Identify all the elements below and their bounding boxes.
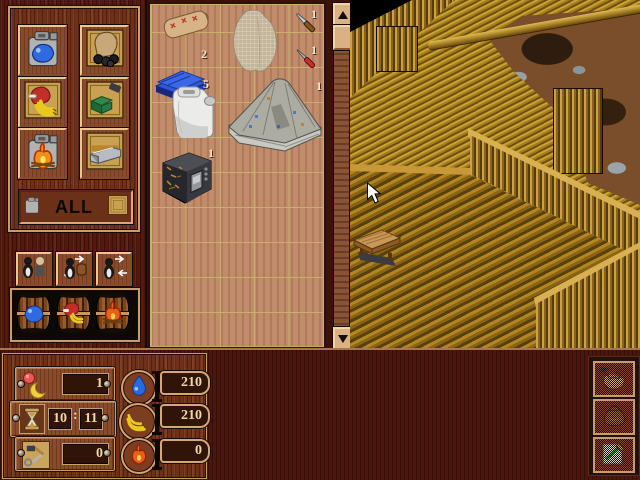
scrollbar-track[interactable] <box>333 2 350 350</box>
write-button[interactable] <box>593 437 635 473</box>
rivet <box>104 381 110 387</box>
time-separator: : <box>73 408 78 424</box>
category-metal-button[interactable] <box>80 128 129 179</box>
iso-table[interactable] <box>352 222 404 270</box>
item-water-can[interactable] <box>161 75 225 143</box>
repair-value: 0 <box>62 443 109 465</box>
hourglass-icon <box>19 404 45 434</box>
crew-pair-icon <box>20 254 48 285</box>
time-minutes: 11 <box>79 408 103 430</box>
water-value: 210 <box>160 371 210 395</box>
barrel-cap <box>19 293 48 298</box>
barrel-cap <box>19 328 48 333</box>
fuel-gauge-divider <box>155 441 159 468</box>
food-resource-icon-frame <box>119 403 157 441</box>
supplies-button[interactable] <box>593 361 635 397</box>
item-tent[interactable] <box>225 73 325 153</box>
food-gauge-divider <box>155 406 159 433</box>
scroll-down-icon <box>338 335 348 343</box>
pouch-icon <box>600 402 628 433</box>
item-count: 2 <box>201 47 207 62</box>
sun-moon-icon <box>20 370 48 403</box>
world-view[interactable] <box>350 0 640 350</box>
crossed-tools-icon <box>22 441 50 469</box>
day-plate: 1 <box>15 367 115 401</box>
barrel-panel <box>10 288 140 342</box>
fuel-value: 0 <box>160 439 210 463</box>
item-count: 1 <box>208 146 214 161</box>
fire-jug-icon <box>25 131 61 176</box>
category-fire-button[interactable] <box>18 128 67 179</box>
crew-barrel-swap-icon <box>60 254 88 285</box>
pencil-check-icon <box>600 439 628 472</box>
filter-all-button[interactable]: ALL <box>19 190 133 224</box>
item-count: 5 <box>203 77 209 92</box>
time-plate: 10 : 11 <box>10 401 116 437</box>
swap-crew-left-button[interactable] <box>16 252 52 286</box>
inventory-panel: 1 2 1 <box>145 0 330 350</box>
materials-crate-icon <box>86 81 124 124</box>
water-drop-icon <box>128 374 150 403</box>
food-value: 210 <box>160 404 210 428</box>
all-label: ALL <box>55 197 93 218</box>
rivet <box>13 415 19 421</box>
inventory-scrollbar <box>330 0 350 350</box>
item-count: 1 <box>316 79 322 94</box>
water-barrel[interactable] <box>17 294 50 332</box>
food-crate-icon <box>24 81 62 124</box>
category-water-button[interactable] <box>18 25 67 76</box>
item-supply-sack[interactable] <box>159 7 213 41</box>
item-count: 1 <box>311 43 317 58</box>
metal-crate-icon <box>86 132 124 175</box>
stats-panel: 1 10 : 11 <box>2 353 207 479</box>
repair-plate: 0 <box>15 437 115 471</box>
water-gauge-divider <box>155 373 159 400</box>
category-panel: ALL <box>8 6 140 232</box>
item-net-bag[interactable] <box>227 8 283 74</box>
item-count: 1 <box>311 7 317 22</box>
time-hours: 10 <box>48 408 72 430</box>
rivet <box>102 415 108 421</box>
barrel-cap <box>98 293 127 298</box>
bottom-bar: 1 10 : 11 <box>0 348 640 480</box>
game-screen: ALL <box>0 0 640 480</box>
bananas-icon <box>125 408 151 437</box>
coal-sack-icon <box>86 29 124 72</box>
day-value: 1 <box>62 373 109 395</box>
iso-log-post-mid <box>553 88 603 174</box>
category-materials-button[interactable] <box>80 77 129 128</box>
crew-swap-icon <box>100 254 128 285</box>
rivet <box>18 381 24 387</box>
flame-icon <box>128 442 150 471</box>
category-supplies-button[interactable] <box>80 25 129 76</box>
scroll-up-icon <box>338 11 348 19</box>
bag-button[interactable] <box>593 399 635 435</box>
barrel-cap <box>98 328 127 333</box>
water-blob-icon <box>22 302 46 324</box>
swap-crew-middle-button[interactable] <box>56 252 92 286</box>
rivet <box>18 450 24 456</box>
swap-crew-right-button[interactable] <box>96 252 132 286</box>
barrel-cap <box>59 293 88 298</box>
category-food-button[interactable] <box>18 77 67 128</box>
action-stack <box>588 356 640 476</box>
crate-icon <box>108 195 128 220</box>
backpack-tool-icon <box>599 363 629 396</box>
jug-icon <box>24 195 40 220</box>
food-barrel[interactable] <box>57 294 90 332</box>
meat-banana-icon <box>61 300 87 326</box>
inventory-grid: 1 2 1 <box>150 4 324 347</box>
rivet <box>104 450 110 456</box>
barrel-cap <box>59 328 88 333</box>
water-jug-icon <box>25 28 61 73</box>
campfire-icon <box>100 299 126 327</box>
iso-log-post <box>376 26 418 72</box>
fire-barrel[interactable] <box>96 294 129 332</box>
